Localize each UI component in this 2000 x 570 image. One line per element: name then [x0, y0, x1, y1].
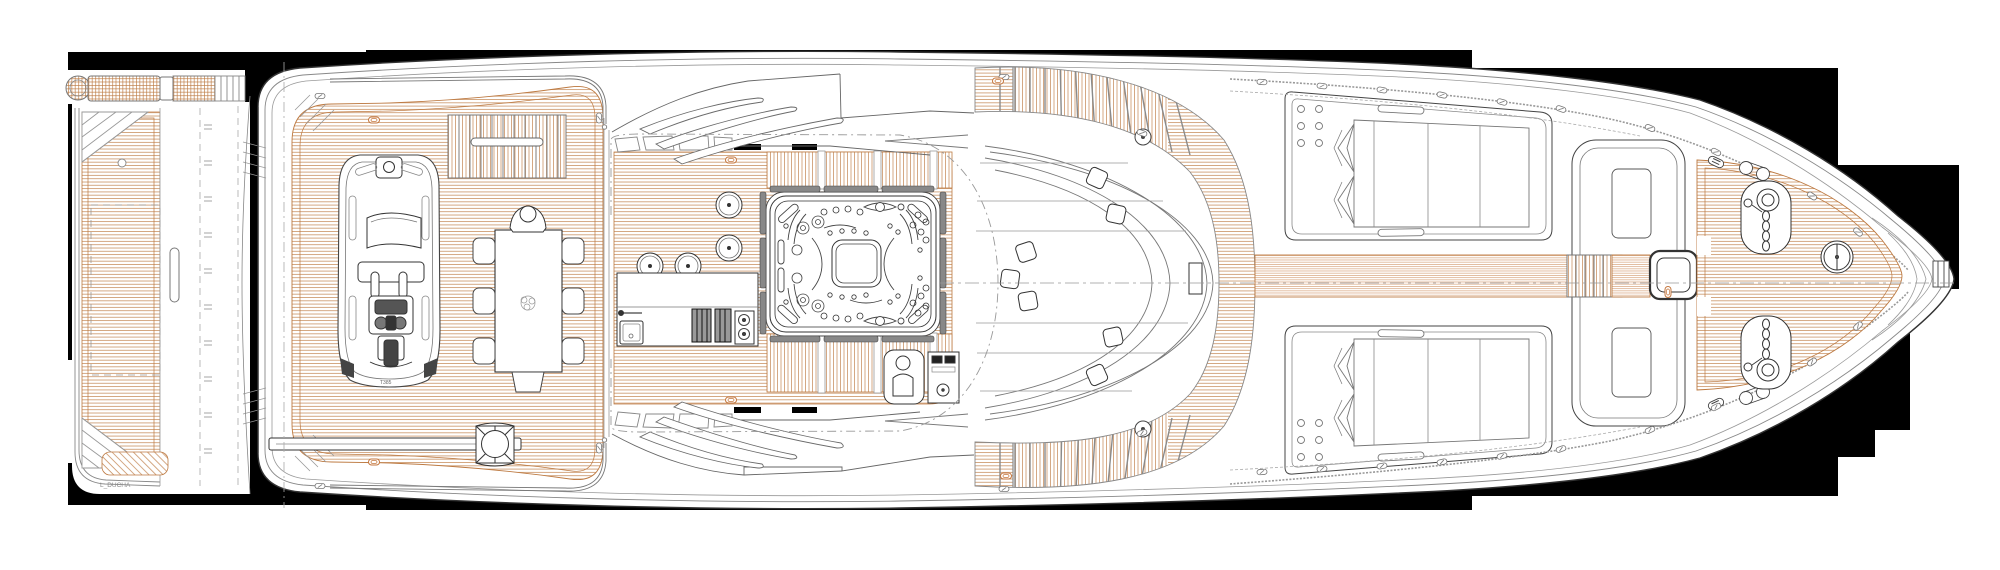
svg-text:T385: T385	[380, 380, 392, 386]
svg-text:L_DUCHA: L_DUCHA	[100, 482, 131, 489]
